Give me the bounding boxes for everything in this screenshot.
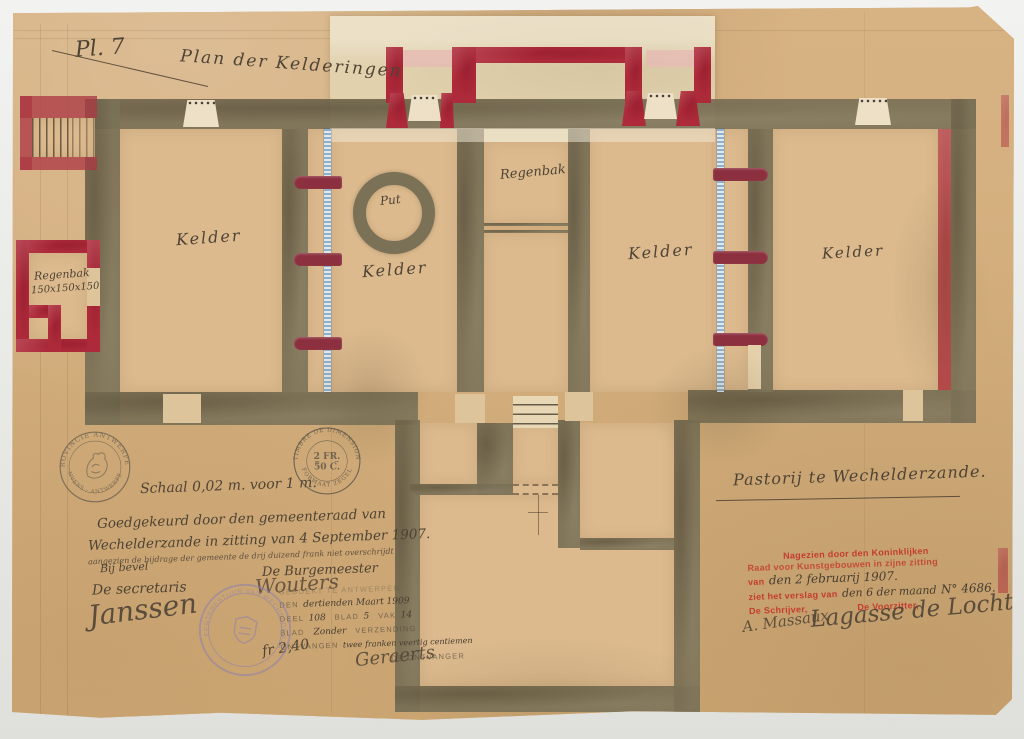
by-order-label: Bij bevel — [100, 560, 149, 576]
verzending-label: VERZENDING — [355, 624, 416, 635]
red-door-jamb — [440, 93, 454, 128]
door-opening — [163, 394, 201, 423]
caption-underline — [716, 496, 960, 501]
door-threshold — [183, 100, 219, 127]
door-threshold — [408, 95, 441, 121]
dashed-opening — [513, 484, 558, 495]
room-regenbak — [484, 142, 568, 223]
lion-crest-icon — [87, 453, 107, 478]
wall-tie — [294, 337, 342, 350]
faded-wall — [403, 50, 452, 67]
plumb-mark — [528, 512, 548, 513]
seal-value-1: 2 FR. — [314, 451, 341, 462]
municipal-seal-stamp: GEMEENTEBESTUUR VAN WECHELDERZANDE — [190, 575, 300, 685]
regenbak-wall — [16, 240, 29, 352]
seal-value-2: 50 C. — [314, 461, 340, 472]
wall-tie — [294, 176, 342, 189]
red-pillar — [694, 47, 711, 103]
wall-segment — [85, 392, 418, 425]
wall-tie — [294, 253, 342, 266]
wall-segment — [484, 223, 568, 226]
blad-value: 5 — [363, 612, 369, 622]
wall-segment — [85, 99, 976, 129]
red-edge-bleed — [998, 548, 1008, 593]
wall-segment — [674, 420, 700, 712]
red-wall-stripe — [938, 129, 951, 390]
red-wall-new — [452, 47, 476, 103]
wall-segment — [410, 484, 513, 495]
photo-background: Pl. 7 Plan der Kelderingen Kelder Put Ke… — [0, 0, 1024, 739]
threshold-dots — [187, 101, 214, 105]
stair-wall — [20, 157, 97, 170]
vak-label: VAK — [378, 611, 396, 621]
wall-segment — [688, 390, 976, 423]
extension-passage — [513, 423, 558, 484]
patch-edge — [330, 128, 715, 142]
vak-value: 14 — [400, 610, 412, 620]
stair-steps-dashed — [72, 118, 95, 157]
door-opening — [565, 392, 593, 421]
door-threshold — [644, 93, 677, 119]
verslag-label: ziet het verslag van — [748, 589, 837, 602]
room-corridor — [484, 233, 568, 392]
construction-line — [14, 38, 364, 39]
shield-icon — [232, 615, 257, 645]
wall-segment — [568, 129, 590, 392]
cellar-steps — [513, 396, 558, 428]
room-label-put: Put — [379, 192, 401, 208]
red-edge-bleed — [1001, 95, 1009, 147]
door-opening — [748, 345, 761, 389]
wall-tie — [713, 251, 768, 264]
threshold-dots — [859, 99, 886, 103]
faded-wall — [646, 50, 694, 67]
seal-arc-text: GEMEENTEBESTUUR VAN WECHELDERZANDE — [192, 575, 294, 650]
well-ring — [353, 172, 435, 254]
threshold-dots — [412, 96, 437, 100]
wall-segment — [457, 129, 484, 392]
door-opening — [903, 390, 923, 421]
van-label: van — [748, 577, 765, 588]
plate-label: Pl. 7 — [74, 34, 125, 62]
door-threshold — [855, 98, 891, 125]
wall-segment — [951, 99, 976, 423]
room-label-kelder-4: Kelder — [822, 241, 885, 262]
provincial-seal-stamp: PROVINCIE ANTWERPEN ANVERS · ANTWERPEN — [58, 430, 132, 504]
wall-segment — [395, 420, 420, 712]
svg-text:GEMEENTEBESTUUR VAN WECHELDERZ: GEMEENTEBESTUUR VAN WECHELDERZANDE — [192, 575, 294, 650]
plan-sheet: Pl. 7 Plan der Kelderingen Kelder Put Ke… — [10, 6, 1014, 722]
stair-steps — [32, 118, 72, 157]
room-kelder-1 — [120, 129, 282, 392]
wall-tie — [713, 168, 768, 181]
wall-segment — [558, 420, 580, 548]
regenbak-wall — [48, 305, 61, 352]
room-extension-left — [420, 423, 477, 484]
wall-segment — [484, 230, 568, 233]
door-opening — [455, 394, 485, 423]
scale-note: Schaal 0,02 m. voor 1 m. — [140, 475, 317, 497]
wall-segment — [395, 686, 700, 712]
threshold-dots — [648, 94, 673, 98]
dimension-seal-stamp: TIMBRE DE DIMENSION FORMAAT ZEGEL 2 FR. … — [292, 426, 362, 496]
plan-caption: Pastorij te Wechelderzande. — [733, 462, 987, 490]
room-extension-right — [580, 423, 674, 538]
wall-segment — [580, 538, 674, 550]
plumb-mark — [538, 495, 539, 535]
red-wall-new — [452, 47, 642, 63]
